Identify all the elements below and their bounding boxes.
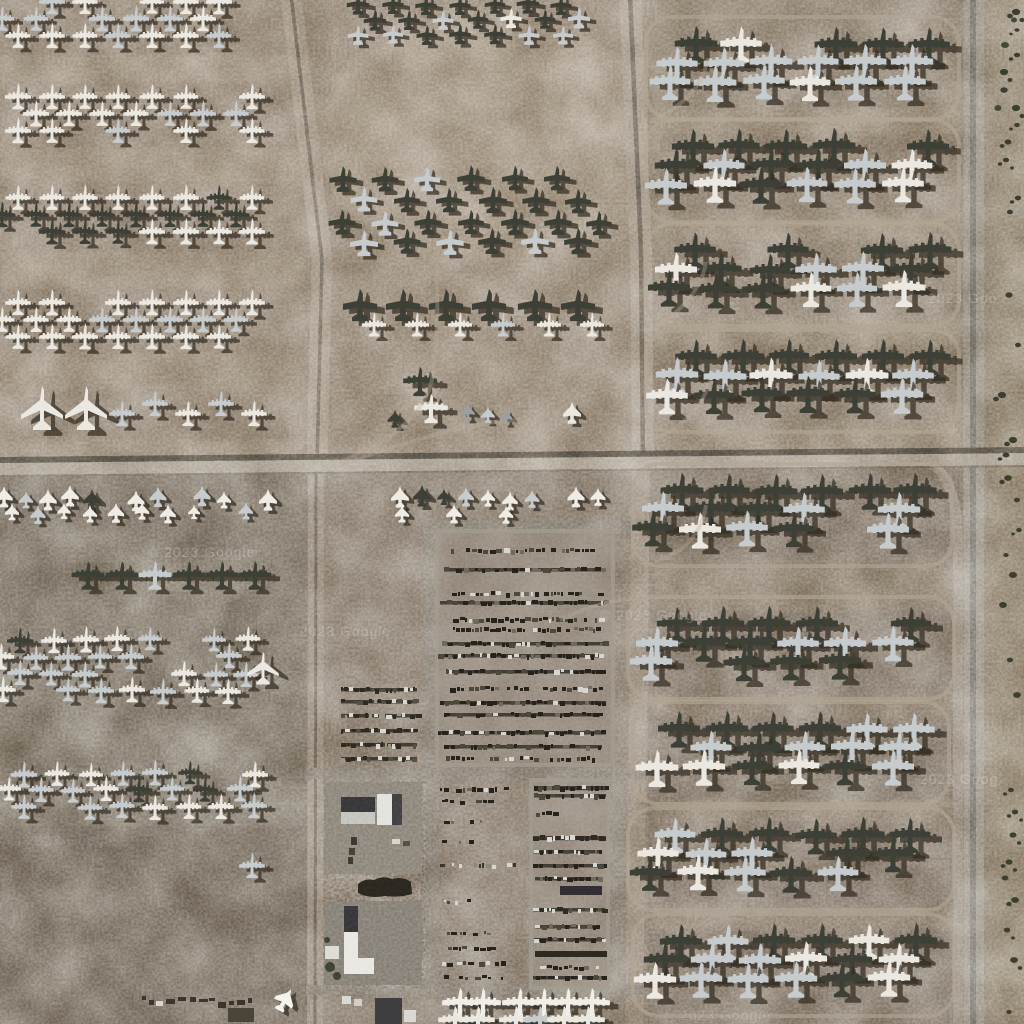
svg-text:2023 Google: 2023 Google xyxy=(300,623,391,639)
svg-text:© 2023 Google: © 2023 Google xyxy=(148,544,255,560)
svg-text:© 2023 Google: © 2023 Google xyxy=(10,832,117,848)
svg-text:2023 Goo: 2023 Goo xyxy=(928,290,998,306)
svg-text:2023 Goog: 2023 Goog xyxy=(920,771,998,787)
svg-text:© 2023 Google: © 2023 Google xyxy=(600,607,707,623)
svg-text:2023 Google: 2023 Google xyxy=(680,1007,771,1023)
